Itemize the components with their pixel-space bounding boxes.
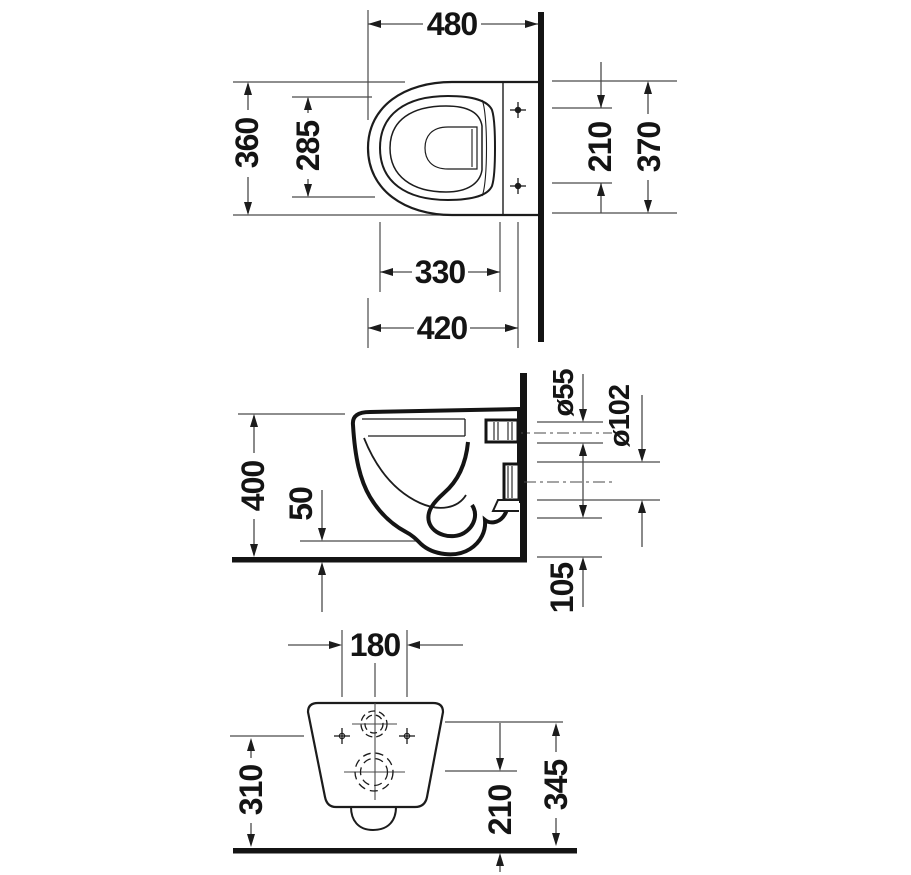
dim-fixing-hole-spacing-rear: 180 (350, 627, 401, 663)
rear-floor-line (233, 848, 577, 854)
dim-total-depth: 480 (427, 6, 478, 42)
side-wall-line (520, 373, 527, 562)
toilet-dimension-drawing: 480 360 285 210 370 330 420 (0, 0, 911, 875)
dim-mid-depth: 420 (417, 310, 468, 346)
dim-seat-inner-width: 285 (290, 121, 326, 172)
dim-outlet-diameter: ø102 (604, 385, 636, 447)
side-floor-line (232, 557, 527, 563)
dim-inlet-diameter: ø55 (548, 369, 580, 417)
dim-rim-height: 400 (235, 461, 271, 512)
dim-bottom-clearance: 50 (283, 487, 319, 521)
dim-outlet-center-height: 210 (482, 785, 518, 836)
dim-fixing-hole-spacing-plan: 210 (582, 122, 618, 173)
dim-fixing-hole-height: 310 (233, 765, 269, 816)
dim-overall-width: 360 (229, 118, 265, 169)
side-inlet-spigot (486, 420, 518, 442)
plan-wall-line (538, 12, 544, 342)
plan-view: 480 360 285 210 370 330 420 (229, 6, 677, 348)
dim-rim-depth: 370 (631, 122, 667, 173)
dim-inlet-center-height: 345 (538, 760, 574, 811)
rear-view: 180 310 210 345 (230, 627, 577, 872)
dim-rear-depth: 330 (415, 254, 466, 290)
plan-bowl-outline (368, 82, 538, 215)
rear-outlet-arch (351, 807, 396, 830)
side-mount-bracket (493, 500, 519, 511)
technical-drawing-canvas: 480 360 285 210 370 330 420 (0, 0, 911, 875)
elevation-view: 400 50 ø55 ø102 105 (232, 369, 660, 614)
dim-outlet-bottom-offset: 105 (544, 563, 580, 614)
